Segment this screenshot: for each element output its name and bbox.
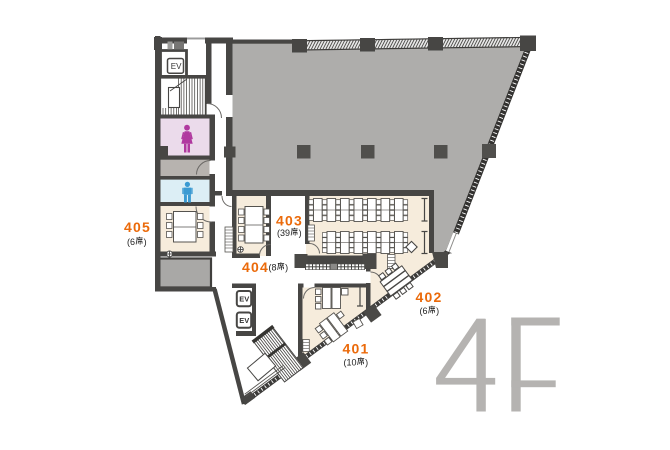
svg-text:401: 401 bbox=[343, 341, 370, 357]
svg-text:EV: EV bbox=[171, 62, 182, 71]
svg-text:): ) bbox=[144, 237, 147, 247]
svg-text:402: 402 bbox=[416, 289, 443, 305]
svg-text:): ) bbox=[365, 358, 368, 368]
svg-text:(10: (10 bbox=[344, 358, 357, 368]
svg-text:EV: EV bbox=[239, 316, 249, 325]
svg-text:(39: (39 bbox=[277, 228, 290, 238]
svg-text:(6: (6 bbox=[420, 306, 428, 316]
svg-text:(6: (6 bbox=[127, 237, 135, 247]
svg-text:EV: EV bbox=[239, 295, 249, 304]
svg-text:403: 403 bbox=[276, 213, 303, 229]
svg-text:(8: (8 bbox=[269, 263, 277, 273]
svg-text:404: 404 bbox=[242, 259, 269, 275]
svg-text:): ) bbox=[436, 306, 439, 316]
svg-text:405: 405 bbox=[124, 219, 151, 235]
svg-text:): ) bbox=[285, 263, 288, 273]
svg-text:): ) bbox=[299, 228, 302, 238]
